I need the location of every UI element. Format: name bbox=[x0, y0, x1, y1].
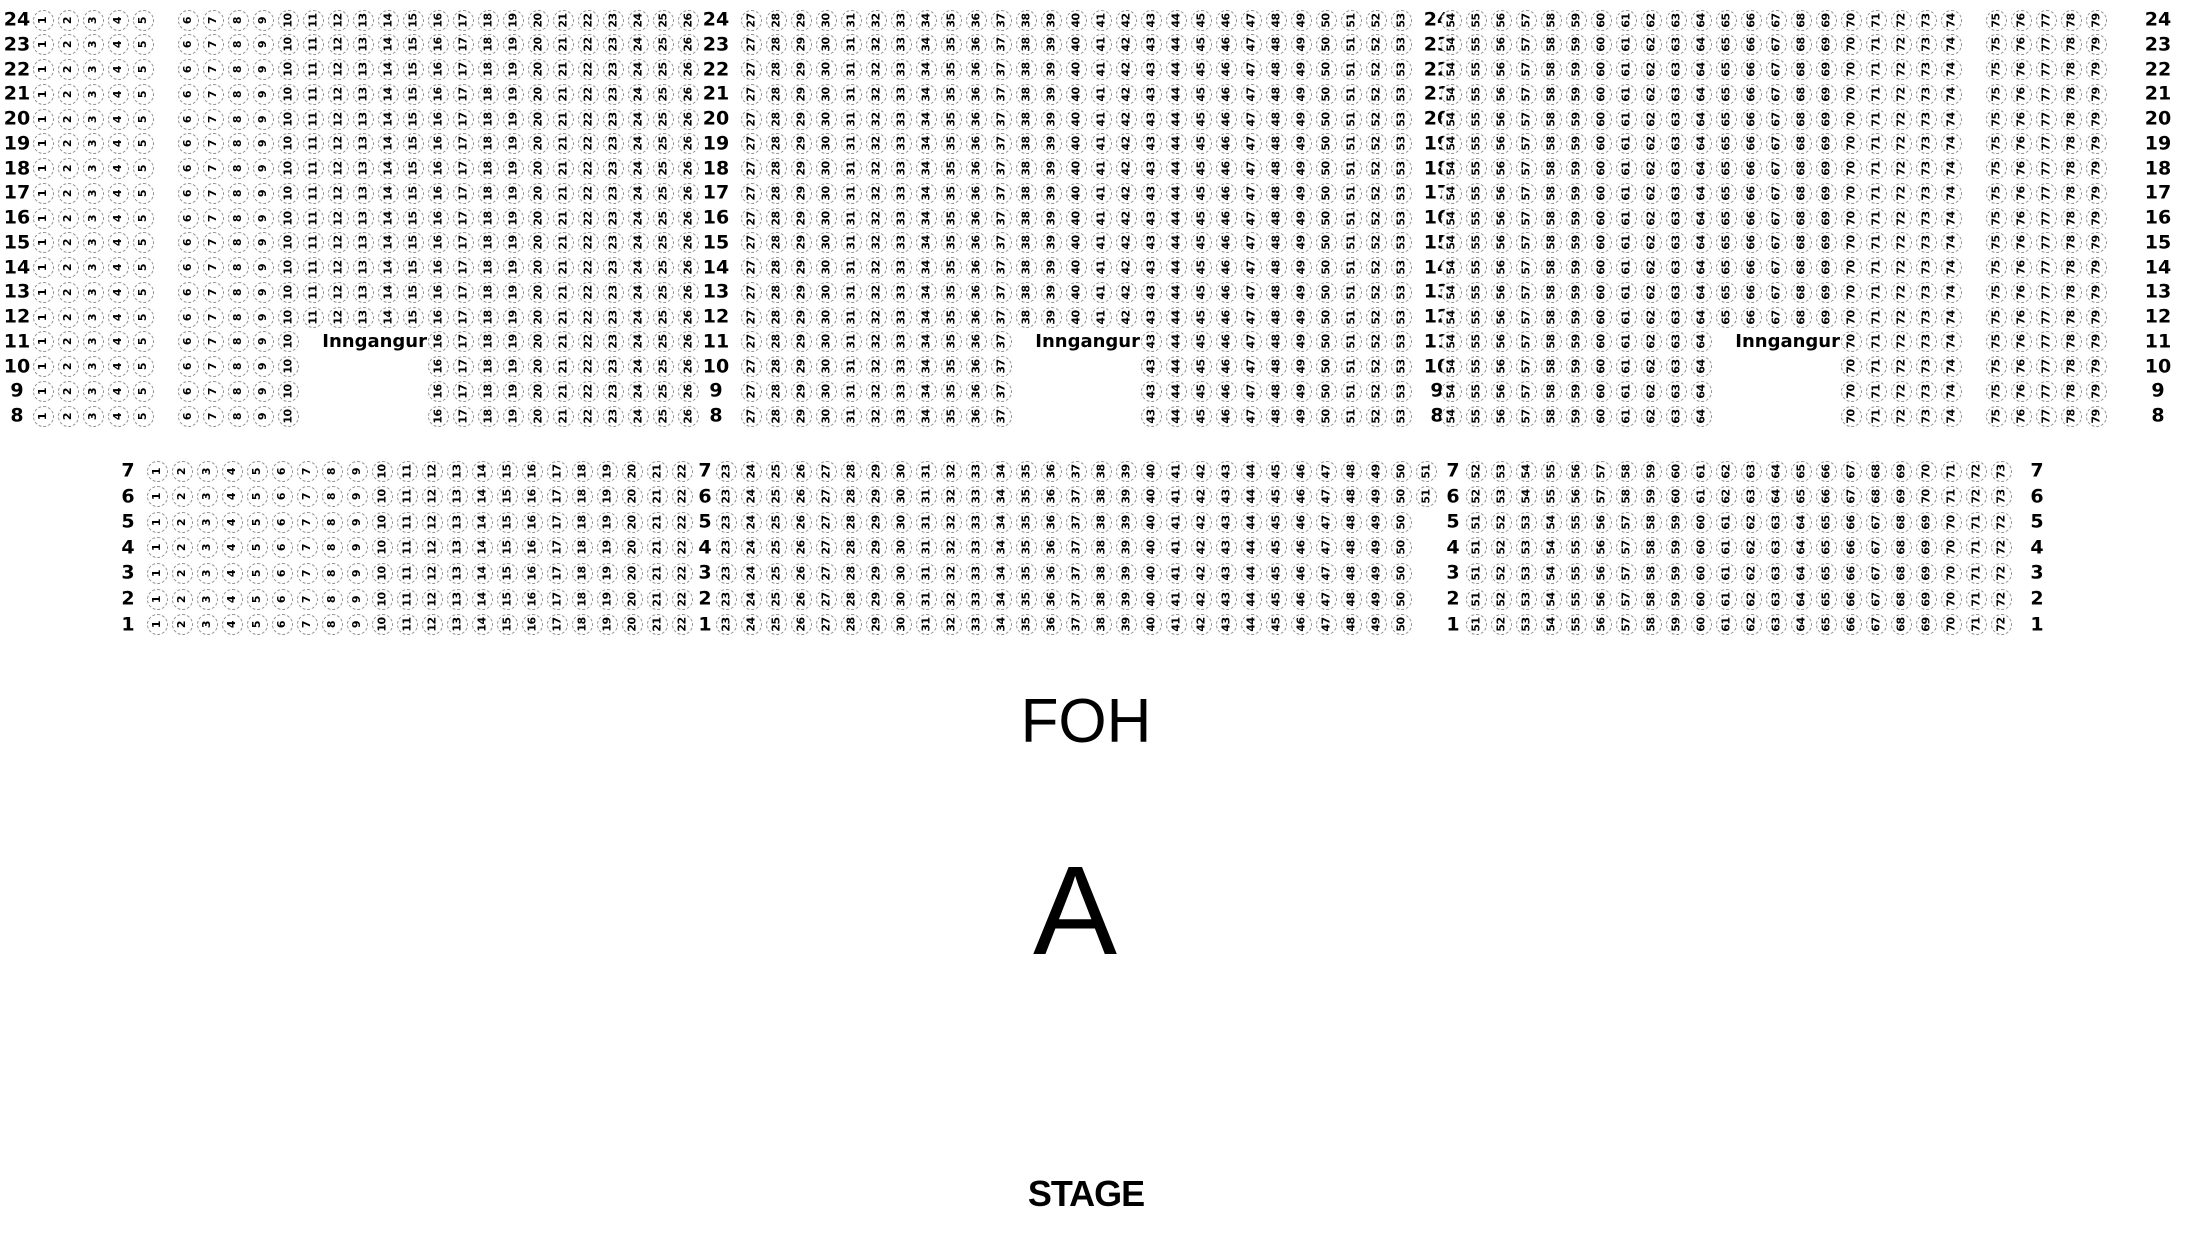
seat[interactable]: 61 bbox=[1616, 109, 1637, 130]
seat[interactable]: 43 bbox=[1141, 356, 1162, 377]
seat[interactable]: 15 bbox=[497, 486, 518, 507]
seat[interactable]: 70 bbox=[1841, 10, 1862, 31]
seat[interactable]: 52 bbox=[1491, 512, 1512, 533]
seat[interactable]: 50 bbox=[1316, 158, 1337, 179]
seat[interactable]: 5 bbox=[133, 381, 154, 402]
seat[interactable]: 8 bbox=[322, 486, 343, 507]
seat[interactable]: 35 bbox=[941, 208, 962, 229]
seat[interactable]: 41 bbox=[1091, 208, 1112, 229]
seat[interactable]: 72 bbox=[1891, 307, 1912, 328]
seat[interactable]: 40 bbox=[1141, 589, 1162, 610]
seat[interactable]: 60 bbox=[1591, 307, 1612, 328]
seat[interactable]: 9 bbox=[253, 232, 274, 253]
seat[interactable]: 40 bbox=[1141, 614, 1162, 635]
seat[interactable]: 27 bbox=[816, 486, 837, 507]
seat[interactable]: 23 bbox=[603, 331, 624, 352]
seat[interactable]: 31 bbox=[841, 183, 862, 204]
seat[interactable]: 59 bbox=[1566, 84, 1587, 105]
seat[interactable]: 52 bbox=[1366, 356, 1387, 377]
seat[interactable]: 22 bbox=[578, 133, 599, 154]
seat[interactable]: 71 bbox=[1866, 208, 1887, 229]
seat[interactable]: 50 bbox=[1316, 59, 1337, 80]
seat[interactable]: 60 bbox=[1691, 614, 1712, 635]
seat[interactable]: 33 bbox=[966, 461, 987, 482]
seat[interactable]: 72 bbox=[1891, 133, 1912, 154]
seat[interactable]: 4 bbox=[108, 381, 129, 402]
seat[interactable]: 27 bbox=[741, 109, 762, 130]
seat[interactable]: 57 bbox=[1516, 381, 1537, 402]
seat[interactable]: 41 bbox=[1091, 34, 1112, 55]
seat[interactable]: 38 bbox=[1091, 512, 1112, 533]
seat[interactable]: 26 bbox=[791, 461, 812, 482]
seat[interactable]: 51 bbox=[1341, 59, 1362, 80]
seat[interactable]: 64 bbox=[1691, 406, 1712, 427]
seat[interactable]: 42 bbox=[1116, 10, 1137, 31]
seat[interactable]: 4 bbox=[108, 84, 129, 105]
seat[interactable]: 52 bbox=[1366, 257, 1387, 278]
seat[interactable]: 13 bbox=[353, 208, 374, 229]
seat[interactable]: 19 bbox=[503, 381, 524, 402]
seat[interactable]: 56 bbox=[1491, 34, 1512, 55]
seat[interactable]: 4 bbox=[108, 34, 129, 55]
seat[interactable]: 42 bbox=[1191, 461, 1212, 482]
seat[interactable]: 18 bbox=[478, 307, 499, 328]
seat[interactable]: 66 bbox=[1741, 133, 1762, 154]
seat[interactable]: 28 bbox=[841, 512, 862, 533]
seat[interactable]: 24 bbox=[741, 461, 762, 482]
seat[interactable]: 15 bbox=[403, 84, 424, 105]
seat[interactable]: 70 bbox=[1841, 356, 1862, 377]
seat[interactable]: 50 bbox=[1391, 614, 1412, 635]
seat[interactable]: 19 bbox=[597, 512, 618, 533]
seat[interactable]: 53 bbox=[1491, 486, 1512, 507]
seat[interactable]: 73 bbox=[1916, 208, 1937, 229]
seat[interactable]: 24 bbox=[628, 307, 649, 328]
seat[interactable]: 46 bbox=[1216, 109, 1237, 130]
seat[interactable]: 65 bbox=[1816, 614, 1837, 635]
seat[interactable]: 10 bbox=[278, 356, 299, 377]
seat[interactable]: 4 bbox=[222, 589, 243, 610]
seat[interactable]: 20 bbox=[528, 356, 549, 377]
seat[interactable]: 75 bbox=[1986, 331, 2007, 352]
seat[interactable]: 3 bbox=[83, 282, 104, 303]
seat[interactable]: 6 bbox=[178, 59, 199, 80]
seat[interactable]: 51 bbox=[1341, 282, 1362, 303]
seat[interactable]: 66 bbox=[1816, 486, 1837, 507]
seat[interactable]: 62 bbox=[1741, 512, 1762, 533]
seat[interactable]: 15 bbox=[403, 109, 424, 130]
seat[interactable]: 52 bbox=[1466, 486, 1487, 507]
seat[interactable]: 12 bbox=[328, 34, 349, 55]
seat[interactable]: 17 bbox=[453, 158, 474, 179]
seat[interactable]: 10 bbox=[278, 109, 299, 130]
seat[interactable]: 16 bbox=[522, 461, 543, 482]
seat[interactable]: 49 bbox=[1291, 183, 1312, 204]
seat[interactable]: 27 bbox=[741, 232, 762, 253]
seat[interactable]: 75 bbox=[1986, 34, 2007, 55]
seat[interactable]: 46 bbox=[1291, 486, 1312, 507]
seat[interactable]: 43 bbox=[1141, 381, 1162, 402]
seat[interactable]: 61 bbox=[1616, 10, 1637, 31]
seat[interactable]: 73 bbox=[1991, 461, 2012, 482]
seat[interactable]: 48 bbox=[1341, 461, 1362, 482]
seat[interactable]: 53 bbox=[1391, 10, 1412, 31]
seat[interactable]: 68 bbox=[1791, 282, 1812, 303]
seat[interactable]: 73 bbox=[1916, 381, 1937, 402]
seat[interactable]: 28 bbox=[766, 406, 787, 427]
seat[interactable]: 4 bbox=[108, 282, 129, 303]
seat[interactable]: 46 bbox=[1291, 461, 1312, 482]
seat[interactable]: 56 bbox=[1491, 133, 1512, 154]
seat[interactable]: 72 bbox=[1991, 589, 2012, 610]
seat[interactable]: 61 bbox=[1716, 512, 1737, 533]
seat[interactable]: 52 bbox=[1366, 59, 1387, 80]
seat[interactable]: 30 bbox=[816, 84, 837, 105]
seat[interactable]: 70 bbox=[1941, 614, 1962, 635]
seat[interactable]: 77 bbox=[2036, 158, 2057, 179]
seat[interactable]: 72 bbox=[1891, 257, 1912, 278]
seat[interactable]: 38 bbox=[1091, 563, 1112, 584]
seat[interactable]: 2 bbox=[58, 307, 79, 328]
seat[interactable]: 43 bbox=[1216, 512, 1237, 533]
seat[interactable]: 74 bbox=[1941, 331, 1962, 352]
seat[interactable]: 21 bbox=[553, 208, 574, 229]
seat[interactable]: 19 bbox=[503, 183, 524, 204]
seat[interactable]: 2 bbox=[172, 614, 193, 635]
seat[interactable]: 51 bbox=[1341, 158, 1362, 179]
seat[interactable]: 59 bbox=[1566, 10, 1587, 31]
seat[interactable]: 49 bbox=[1291, 356, 1312, 377]
seat[interactable]: 34 bbox=[916, 59, 937, 80]
seat[interactable]: 28 bbox=[766, 282, 787, 303]
seat[interactable]: 37 bbox=[991, 356, 1012, 377]
seat[interactable]: 26 bbox=[791, 486, 812, 507]
seat[interactable]: 23 bbox=[603, 10, 624, 31]
seat[interactable]: 68 bbox=[1791, 109, 1812, 130]
seat[interactable]: 48 bbox=[1266, 257, 1287, 278]
seat[interactable]: 16 bbox=[428, 232, 449, 253]
seat[interactable]: 58 bbox=[1641, 614, 1662, 635]
seat[interactable]: 32 bbox=[941, 512, 962, 533]
seat[interactable]: 33 bbox=[891, 282, 912, 303]
seat[interactable]: 72 bbox=[1991, 537, 2012, 558]
seat[interactable]: 2 bbox=[172, 537, 193, 558]
seat[interactable]: 76 bbox=[2011, 59, 2032, 80]
seat[interactable]: 29 bbox=[791, 257, 812, 278]
seat[interactable]: 1 bbox=[33, 406, 54, 427]
seat[interactable]: 36 bbox=[1041, 537, 1062, 558]
seat[interactable]: 65 bbox=[1816, 537, 1837, 558]
seat[interactable]: 27 bbox=[741, 381, 762, 402]
seat[interactable]: 19 bbox=[503, 109, 524, 130]
seat[interactable]: 12 bbox=[422, 461, 443, 482]
seat[interactable]: 45 bbox=[1191, 257, 1212, 278]
seat[interactable]: 76 bbox=[2011, 232, 2032, 253]
seat[interactable]: 70 bbox=[1841, 257, 1862, 278]
seat[interactable]: 35 bbox=[941, 356, 962, 377]
seat[interactable]: 57 bbox=[1516, 158, 1537, 179]
seat[interactable]: 71 bbox=[1866, 331, 1887, 352]
seat[interactable]: 60 bbox=[1591, 34, 1612, 55]
seat[interactable]: 9 bbox=[347, 461, 368, 482]
seat[interactable]: 48 bbox=[1266, 59, 1287, 80]
seat[interactable]: 18 bbox=[572, 512, 593, 533]
seat[interactable]: 53 bbox=[1391, 257, 1412, 278]
seat[interactable]: 28 bbox=[766, 307, 787, 328]
seat[interactable]: 59 bbox=[1566, 183, 1587, 204]
seat[interactable]: 67 bbox=[1766, 133, 1787, 154]
seat[interactable]: 18 bbox=[572, 486, 593, 507]
seat[interactable]: 40 bbox=[1141, 537, 1162, 558]
seat[interactable]: 69 bbox=[1816, 10, 1837, 31]
seat[interactable]: 40 bbox=[1141, 486, 1162, 507]
seat[interactable]: 57 bbox=[1591, 461, 1612, 482]
seat[interactable]: 39 bbox=[1041, 208, 1062, 229]
seat[interactable]: 47 bbox=[1241, 158, 1262, 179]
seat[interactable]: 29 bbox=[791, 381, 812, 402]
seat[interactable]: 66 bbox=[1841, 537, 1862, 558]
seat[interactable]: 79 bbox=[2086, 232, 2107, 253]
seat[interactable]: 7 bbox=[203, 257, 224, 278]
seat[interactable]: 33 bbox=[966, 589, 987, 610]
seat[interactable]: 40 bbox=[1141, 461, 1162, 482]
seat[interactable]: 70 bbox=[1841, 84, 1862, 105]
seat[interactable]: 54 bbox=[1441, 109, 1462, 130]
seat[interactable]: 64 bbox=[1691, 158, 1712, 179]
seat[interactable]: 54 bbox=[1441, 84, 1462, 105]
seat[interactable]: 32 bbox=[866, 158, 887, 179]
seat[interactable]: 7 bbox=[297, 461, 318, 482]
seat[interactable]: 55 bbox=[1466, 109, 1487, 130]
seat[interactable]: 76 bbox=[2011, 406, 2032, 427]
seat[interactable]: 24 bbox=[628, 406, 649, 427]
seat[interactable]: 67 bbox=[1866, 537, 1887, 558]
seat[interactable]: 45 bbox=[1191, 133, 1212, 154]
seat[interactable]: 77 bbox=[2036, 232, 2057, 253]
seat[interactable]: 53 bbox=[1391, 133, 1412, 154]
seat[interactable]: 51 bbox=[1341, 331, 1362, 352]
seat[interactable]: 7 bbox=[203, 307, 224, 328]
seat[interactable]: 75 bbox=[1986, 257, 2007, 278]
seat[interactable]: 62 bbox=[1641, 109, 1662, 130]
seat[interactable]: 3 bbox=[197, 537, 218, 558]
seat[interactable]: 58 bbox=[1541, 109, 1562, 130]
seat[interactable]: 63 bbox=[1666, 10, 1687, 31]
seat[interactable]: 21 bbox=[553, 282, 574, 303]
seat[interactable]: 1 bbox=[33, 133, 54, 154]
seat[interactable]: 44 bbox=[1166, 59, 1187, 80]
seat[interactable]: 72 bbox=[1891, 406, 1912, 427]
seat[interactable]: 38 bbox=[1016, 183, 1037, 204]
seat[interactable]: 63 bbox=[1666, 109, 1687, 130]
seat[interactable]: 31 bbox=[841, 109, 862, 130]
seat[interactable]: 49 bbox=[1366, 563, 1387, 584]
seat[interactable]: 22 bbox=[578, 208, 599, 229]
seat[interactable]: 49 bbox=[1291, 257, 1312, 278]
seat[interactable]: 41 bbox=[1091, 158, 1112, 179]
seat[interactable]: 75 bbox=[1986, 232, 2007, 253]
seat[interactable]: 19 bbox=[503, 282, 524, 303]
seat[interactable]: 10 bbox=[278, 59, 299, 80]
seat[interactable]: 77 bbox=[2036, 331, 2057, 352]
seat[interactable]: 68 bbox=[1891, 563, 1912, 584]
seat[interactable]: 7 bbox=[203, 381, 224, 402]
seat[interactable]: 76 bbox=[2011, 331, 2032, 352]
seat[interactable]: 27 bbox=[741, 257, 762, 278]
seat[interactable]: 44 bbox=[1166, 331, 1187, 352]
seat[interactable]: 37 bbox=[1066, 614, 1087, 635]
seat[interactable]: 34 bbox=[991, 461, 1012, 482]
seat[interactable]: 56 bbox=[1591, 537, 1612, 558]
seat[interactable]: 4 bbox=[108, 158, 129, 179]
seat[interactable]: 24 bbox=[628, 208, 649, 229]
seat[interactable]: 17 bbox=[453, 257, 474, 278]
seat[interactable]: 56 bbox=[1491, 10, 1512, 31]
seat[interactable]: 69 bbox=[1816, 208, 1837, 229]
seat[interactable]: 1 bbox=[147, 512, 168, 533]
seat[interactable]: 23 bbox=[603, 183, 624, 204]
seat[interactable]: 70 bbox=[1841, 109, 1862, 130]
seat[interactable]: 75 bbox=[1986, 356, 2007, 377]
seat[interactable]: 62 bbox=[1641, 84, 1662, 105]
seat[interactable]: 18 bbox=[478, 10, 499, 31]
seat[interactable]: 43 bbox=[1141, 34, 1162, 55]
seat[interactable]: 24 bbox=[741, 537, 762, 558]
seat[interactable]: 57 bbox=[1591, 486, 1612, 507]
seat[interactable]: 55 bbox=[1466, 10, 1487, 31]
seat[interactable]: 65 bbox=[1791, 486, 1812, 507]
seat[interactable]: 19 bbox=[503, 307, 524, 328]
seat[interactable]: 44 bbox=[1241, 512, 1262, 533]
seat[interactable]: 10 bbox=[372, 589, 393, 610]
seat[interactable]: 68 bbox=[1791, 208, 1812, 229]
seat[interactable]: 27 bbox=[741, 183, 762, 204]
seat[interactable]: 60 bbox=[1591, 257, 1612, 278]
seat[interactable]: 71 bbox=[1866, 133, 1887, 154]
seat[interactable]: 18 bbox=[478, 257, 499, 278]
seat[interactable]: 9 bbox=[253, 381, 274, 402]
seat[interactable]: 49 bbox=[1291, 109, 1312, 130]
seat[interactable]: 57 bbox=[1516, 307, 1537, 328]
seat[interactable]: 2 bbox=[172, 486, 193, 507]
seat[interactable]: 63 bbox=[1766, 563, 1787, 584]
seat[interactable]: 5 bbox=[133, 406, 154, 427]
seat[interactable]: 56 bbox=[1491, 331, 1512, 352]
seat[interactable]: 74 bbox=[1941, 232, 1962, 253]
seat[interactable]: 19 bbox=[503, 406, 524, 427]
seat[interactable]: 17 bbox=[453, 109, 474, 130]
seat[interactable]: 7 bbox=[203, 232, 224, 253]
seat[interactable]: 77 bbox=[2036, 406, 2057, 427]
seat[interactable]: 61 bbox=[1616, 331, 1637, 352]
seat[interactable]: 68 bbox=[1891, 512, 1912, 533]
seat[interactable]: 58 bbox=[1541, 257, 1562, 278]
seat[interactable]: 74 bbox=[1941, 59, 1962, 80]
seat[interactable]: 78 bbox=[2061, 381, 2082, 402]
seat[interactable]: 54 bbox=[1441, 381, 1462, 402]
seat[interactable]: 15 bbox=[403, 208, 424, 229]
seat[interactable]: 17 bbox=[453, 208, 474, 229]
seat[interactable]: 14 bbox=[472, 512, 493, 533]
seat[interactable]: 11 bbox=[303, 257, 324, 278]
seat[interactable]: 42 bbox=[1191, 563, 1212, 584]
seat[interactable]: 61 bbox=[1616, 133, 1637, 154]
seat[interactable]: 17 bbox=[453, 356, 474, 377]
seat[interactable]: 64 bbox=[1691, 34, 1712, 55]
seat[interactable]: 51 bbox=[1341, 133, 1362, 154]
seat[interactable]: 43 bbox=[1216, 461, 1237, 482]
seat[interactable]: 27 bbox=[741, 158, 762, 179]
seat[interactable]: 40 bbox=[1066, 10, 1087, 31]
seat[interactable]: 64 bbox=[1791, 589, 1812, 610]
seat[interactable]: 38 bbox=[1016, 257, 1037, 278]
seat[interactable]: 21 bbox=[647, 461, 668, 482]
seat[interactable]: 5 bbox=[247, 486, 268, 507]
seat[interactable]: 26 bbox=[678, 133, 699, 154]
seat[interactable]: 43 bbox=[1141, 331, 1162, 352]
seat[interactable]: 78 bbox=[2061, 282, 2082, 303]
seat[interactable]: 23 bbox=[716, 461, 737, 482]
seat[interactable]: 46 bbox=[1216, 59, 1237, 80]
seat[interactable]: 67 bbox=[1766, 59, 1787, 80]
seat[interactable]: 76 bbox=[2011, 133, 2032, 154]
seat[interactable]: 37 bbox=[991, 183, 1012, 204]
seat[interactable]: 25 bbox=[653, 406, 674, 427]
seat[interactable]: 65 bbox=[1716, 34, 1737, 55]
seat[interactable]: 35 bbox=[941, 10, 962, 31]
seat[interactable]: 6 bbox=[178, 257, 199, 278]
seat[interactable]: 53 bbox=[1391, 208, 1412, 229]
seat[interactable]: 24 bbox=[628, 381, 649, 402]
seat[interactable]: 36 bbox=[966, 257, 987, 278]
seat[interactable]: 3 bbox=[197, 512, 218, 533]
seat[interactable]: 5 bbox=[247, 614, 268, 635]
seat[interactable]: 32 bbox=[866, 257, 887, 278]
seat[interactable]: 79 bbox=[2086, 109, 2107, 130]
seat[interactable]: 9 bbox=[253, 406, 274, 427]
seat[interactable]: 76 bbox=[2011, 34, 2032, 55]
seat[interactable]: 8 bbox=[228, 208, 249, 229]
seat[interactable]: 54 bbox=[1441, 10, 1462, 31]
seat[interactable]: 68 bbox=[1791, 257, 1812, 278]
seat[interactable]: 52 bbox=[1366, 232, 1387, 253]
seat[interactable]: 67 bbox=[1766, 307, 1787, 328]
seat[interactable]: 3 bbox=[83, 10, 104, 31]
seat[interactable]: 56 bbox=[1491, 232, 1512, 253]
seat[interactable]: 62 bbox=[1641, 158, 1662, 179]
seat[interactable]: 58 bbox=[1641, 512, 1662, 533]
seat[interactable]: 77 bbox=[2036, 381, 2057, 402]
seat[interactable]: 49 bbox=[1291, 307, 1312, 328]
seat[interactable]: 13 bbox=[447, 614, 468, 635]
seat[interactable]: 14 bbox=[378, 307, 399, 328]
seat[interactable]: 30 bbox=[816, 158, 837, 179]
seat[interactable]: 68 bbox=[1791, 34, 1812, 55]
seat[interactable]: 45 bbox=[1191, 307, 1212, 328]
seat[interactable]: 64 bbox=[1791, 512, 1812, 533]
seat[interactable]: 48 bbox=[1341, 512, 1362, 533]
seat[interactable]: 70 bbox=[1841, 406, 1862, 427]
seat[interactable]: 41 bbox=[1091, 307, 1112, 328]
seat[interactable]: 30 bbox=[816, 59, 837, 80]
seat[interactable]: 17 bbox=[453, 307, 474, 328]
seat[interactable]: 21 bbox=[647, 537, 668, 558]
seat[interactable]: 33 bbox=[966, 614, 987, 635]
seat[interactable]: 37 bbox=[991, 59, 1012, 80]
seat[interactable]: 30 bbox=[891, 486, 912, 507]
seat[interactable]: 30 bbox=[891, 563, 912, 584]
seat[interactable]: 34 bbox=[916, 331, 937, 352]
